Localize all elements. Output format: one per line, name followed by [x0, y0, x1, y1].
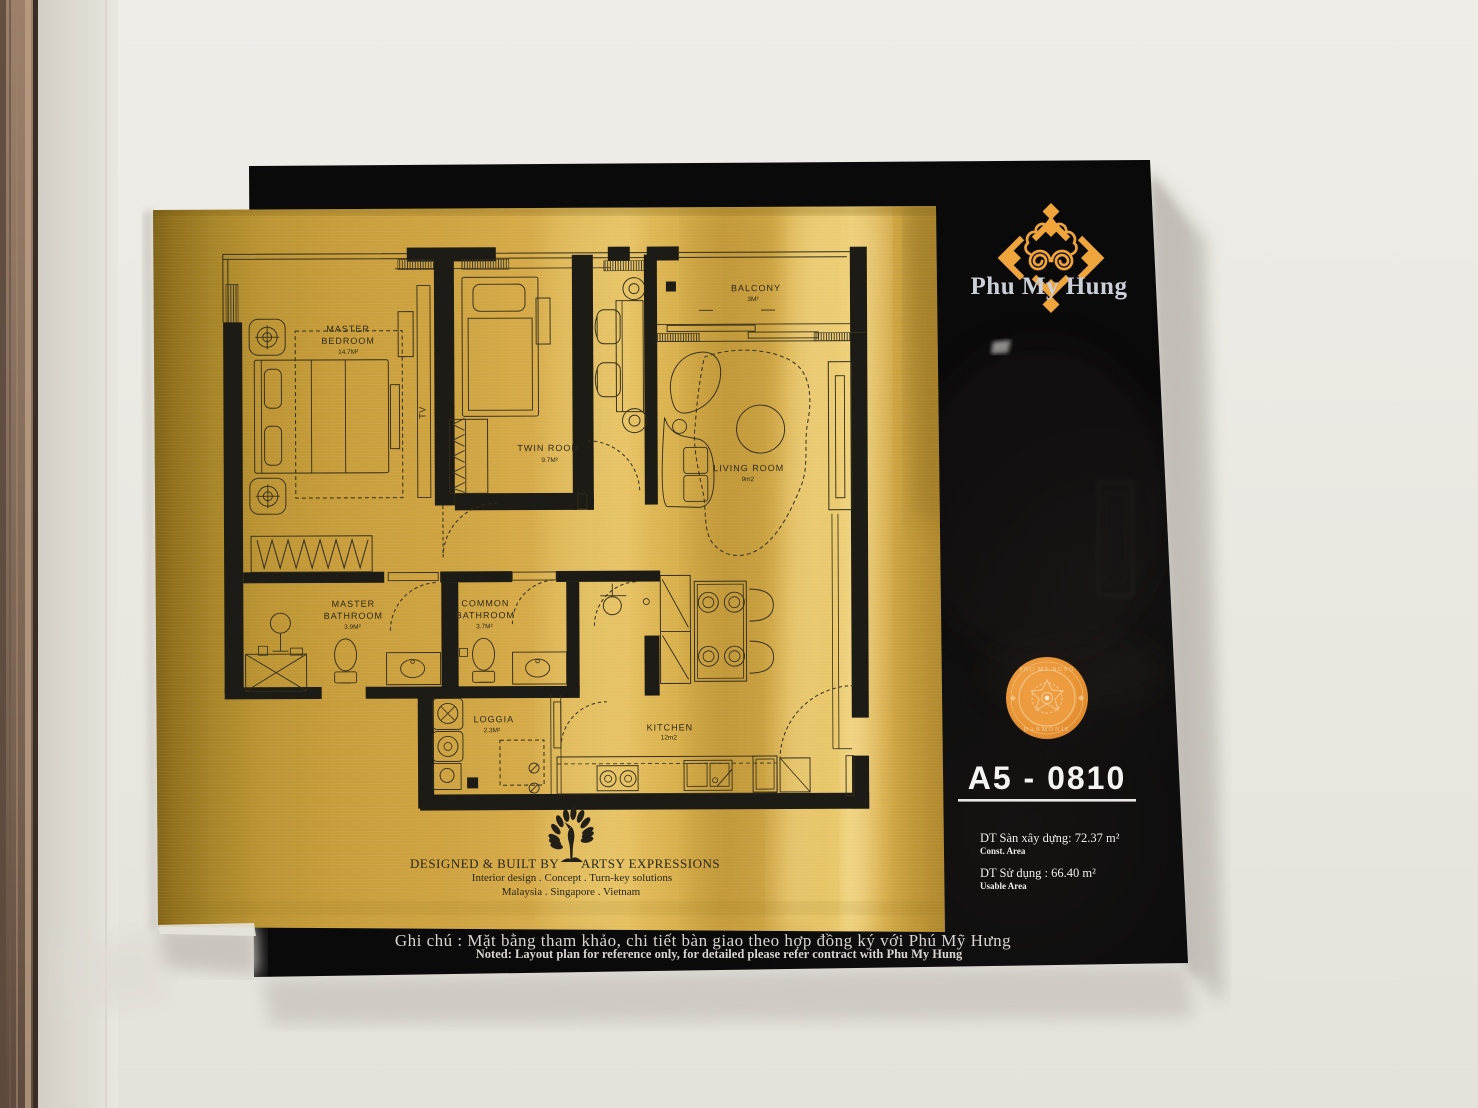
svg-text:Interior design . Concept . Tu: Interior design . Concept . Turn-key sol… — [472, 872, 672, 884]
svg-text:3M²: 3M² — [747, 296, 759, 303]
svg-text:HARMONIE: HARMONIE — [1024, 727, 1071, 733]
svg-text:DESIGNED & BUILT BY: DESIGNED & BUILT BY — [410, 856, 559, 871]
svg-text:MASTER: MASTER — [326, 324, 370, 334]
svg-text:TV: TV — [417, 406, 427, 419]
svg-text:MASTER: MASTER — [332, 599, 376, 609]
svg-text:DT Sử dụng : 66.40 m²: DT Sử dụng : 66.40 m² — [980, 866, 1096, 880]
svg-text:COMMON: COMMON — [461, 598, 509, 608]
svg-text:ARTSY EXPRESSIONS: ARTSY EXPRESSIONS — [581, 856, 720, 871]
svg-text:BATHROOM: BATHROOM — [456, 610, 515, 620]
svg-text:12m2: 12m2 — [661, 734, 678, 741]
svg-text:3.7M²: 3.7M² — [476, 623, 493, 630]
svg-text:14.7M²: 14.7M² — [338, 349, 359, 356]
svg-text:LIVING ROOM: LIVING ROOM — [713, 463, 784, 473]
svg-text:9.7M²: 9.7M² — [541, 457, 558, 464]
svg-text:KITCHEN: KITCHEN — [647, 722, 694, 732]
svg-text:BALCONY: BALCONY — [731, 283, 781, 293]
svg-text:Malaysia . Singapore . Vietnam: Malaysia . Singapore . Vietnam — [502, 886, 641, 898]
svg-text:Noted: Layout plan for referen: Noted: Layout plan for reference only, f… — [476, 947, 963, 961]
svg-text:3.9M²: 3.9M² — [344, 624, 361, 631]
svg-text:A5 - 0810: A5 - 0810 — [968, 760, 1127, 796]
svg-text:BATHROOM: BATHROOM — [324, 611, 383, 621]
svg-text:9m2: 9m2 — [741, 476, 754, 483]
svg-text:Phu My Hung: Phu My Hung — [971, 273, 1128, 300]
svg-text:Usable Area: Usable Area — [980, 881, 1027, 891]
svg-text:PHU MY HUNG: PHU MY HUNG — [1020, 667, 1075, 673]
svg-text:BEDROOM: BEDROOM — [321, 336, 375, 346]
svg-text:Const. Area: Const. Area — [980, 846, 1026, 856]
svg-text:LOGGIA: LOGGIA — [474, 714, 515, 724]
svg-text:DT Sàn xây dựng: 72.37 m²: DT Sàn xây dựng: 72.37 m² — [980, 831, 1120, 845]
svg-text:2.3M²: 2.3M² — [484, 727, 501, 734]
svg-text:TWIN ROOM: TWIN ROOM — [517, 443, 580, 453]
